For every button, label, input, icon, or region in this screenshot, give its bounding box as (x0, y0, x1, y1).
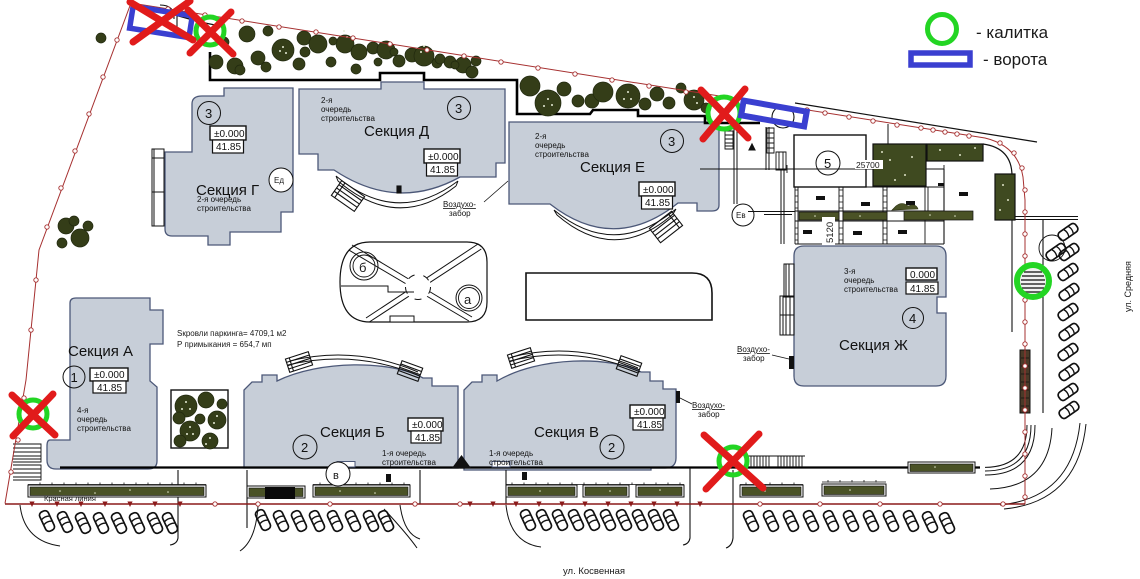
svg-text:Sкровли паркинга= 4709,1 м2: Sкровли паркинга= 4709,1 м2 (177, 329, 287, 338)
svg-text:±0.000: ±0.000 (94, 370, 125, 381)
svg-text:Р примыкания = 654,7 мп: Р примыкания = 654,7 мп (177, 340, 272, 349)
svg-text:2: 2 (608, 440, 615, 455)
svg-text:4-я: 4-я (77, 406, 88, 415)
svg-text:1-я очередь: 1-я очередь (489, 449, 533, 458)
svg-text:Секция Е: Секция Е (580, 159, 645, 176)
svg-text:3: 3 (455, 101, 462, 116)
svg-text:строительства: строительства (197, 204, 251, 213)
svg-text:в: в (333, 470, 339, 482)
svg-text:- калитка: - калитка (976, 23, 1049, 42)
svg-text:2-я очередь: 2-я очередь (197, 195, 241, 204)
svg-text:Воздухо-: Воздухо- (443, 200, 476, 209)
svg-text:3-я: 3-я (844, 267, 855, 276)
svg-text:очередь: очередь (321, 105, 351, 114)
svg-text:2-я: 2-я (535, 132, 546, 141)
svg-text:а: а (464, 292, 472, 307)
svg-text:Ед: Ед (274, 176, 284, 185)
svg-text:25700: 25700 (856, 160, 880, 170)
svg-text:0.000: 0.000 (910, 270, 935, 281)
svg-text:ул. Косвенная: ул. Косвенная (563, 566, 625, 577)
svg-text:забор: забор (698, 410, 720, 419)
svg-text:Секция Д: Секция Д (364, 123, 429, 140)
svg-text:±0.000: ±0.000 (412, 420, 443, 431)
svg-text:41.85: 41.85 (216, 142, 241, 153)
svg-text:5: 5 (824, 156, 831, 171)
svg-text:±0.000: ±0.000 (634, 407, 665, 418)
svg-text:3: 3 (205, 106, 212, 121)
svg-text:3: 3 (668, 134, 675, 149)
svg-text:Воздухо-: Воздухо- (737, 345, 770, 354)
svg-text:Секция В: Секция В (534, 424, 599, 441)
svg-text:±0.000: ±0.000 (214, 129, 245, 140)
svg-text:4: 4 (909, 311, 916, 326)
svg-text:Секция А: Секция А (68, 343, 133, 360)
svg-text:строительства: строительства (844, 285, 898, 294)
svg-text:41.85: 41.85 (97, 383, 122, 394)
svg-text:1-я очередь: 1-я очередь (382, 449, 426, 458)
svg-text:строительства: строительства (77, 424, 131, 433)
svg-text:2-я: 2-я (321, 96, 332, 105)
svg-text:строительства: строительства (535, 150, 589, 159)
svg-text:очередь: очередь (77, 415, 107, 424)
svg-text:1: 1 (71, 370, 78, 385)
svg-text:Ев: Ев (736, 211, 746, 220)
svg-text:41.85: 41.85 (430, 165, 455, 176)
svg-text:Секция Ж: Секция Ж (839, 337, 908, 354)
svg-text:41.85: 41.85 (645, 198, 670, 209)
svg-text:б: б (359, 260, 366, 275)
svg-text:5120: 5120 (825, 222, 836, 243)
svg-text:±0.000: ±0.000 (428, 152, 459, 163)
svg-text:Красная линия: Красная линия (44, 494, 96, 503)
svg-text:очередь: очередь (844, 276, 874, 285)
svg-text:строительства: строительства (321, 114, 375, 123)
svg-text:забор: забор (743, 354, 765, 363)
svg-text:ул. Средняя: ул. Средняя (1123, 261, 1133, 312)
svg-text:41.85: 41.85 (415, 433, 440, 444)
svg-text:строительства: строительства (489, 458, 543, 467)
svg-text:Воздухо-: Воздухо- (692, 401, 725, 410)
svg-text:забор: забор (449, 209, 471, 218)
svg-text:Секция Б: Секция Б (320, 424, 385, 441)
svg-text:строительства: строительства (382, 458, 436, 467)
svg-text:±0.000: ±0.000 (643, 185, 674, 196)
svg-text:очередь: очередь (535, 141, 565, 150)
svg-text:- ворота: - ворота (983, 50, 1048, 69)
svg-text:41.85: 41.85 (637, 420, 662, 431)
svg-text:41.85: 41.85 (910, 284, 935, 295)
svg-text:2: 2 (301, 440, 308, 455)
